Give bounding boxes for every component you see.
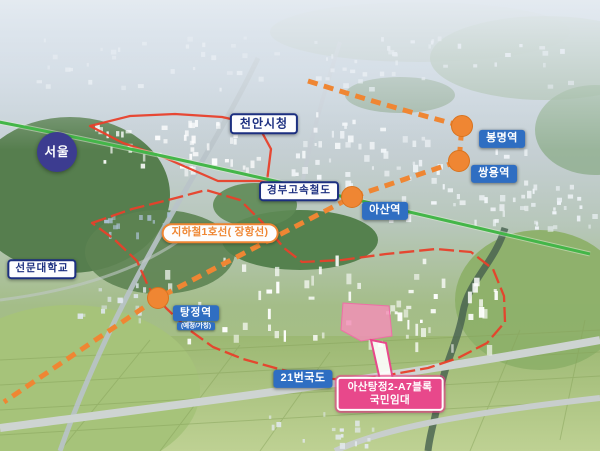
label-station-tangjeong: 탕정역 (예정/가칭) <box>173 305 219 330</box>
station-dot-asan <box>342 187 363 208</box>
label-gyeongbu-express-rail: 경부고속철도 <box>259 181 339 201</box>
label-station-tangjeong-name: 탕정역 <box>173 305 219 321</box>
label-station-bongmyeong: 봉명역 <box>479 130 525 148</box>
site-leader-wedge <box>371 340 393 380</box>
label-site-a7-line2: 국민임대 <box>348 394 433 407</box>
site-highlight-a7-block <box>341 303 392 341</box>
station-dot-ssangyong <box>449 151 470 172</box>
label-station-ssangyong: 쌍용역 <box>471 165 517 183</box>
label-site-a7-block: 아산탕정2-A7블록 국민임대 <box>337 377 444 411</box>
station-dot-tangjeong <box>148 288 169 309</box>
aerial-map: 서울 천안시청 경부고속철도 지하철1호선( 장항선) 선문대학교 봉명역 쌍용… <box>0 0 600 451</box>
label-station-tangjeong-note: (예정/가칭) <box>177 322 215 331</box>
label-sunmoon-university: 선문대학교 <box>7 259 76 279</box>
label-subway-line1: 지하철1호선( 장항선) <box>162 223 279 243</box>
station-dot-bongmyeong <box>452 116 473 137</box>
label-route-21: 21번국도 <box>273 370 332 388</box>
label-site-a7-line1: 아산탕정2-A7블록 <box>348 381 433 394</box>
label-cheonan-city-hall: 천안시청 <box>230 113 298 134</box>
label-station-asan: 아산역 <box>362 202 408 220</box>
label-seoul-direction: 서울 <box>37 132 77 172</box>
